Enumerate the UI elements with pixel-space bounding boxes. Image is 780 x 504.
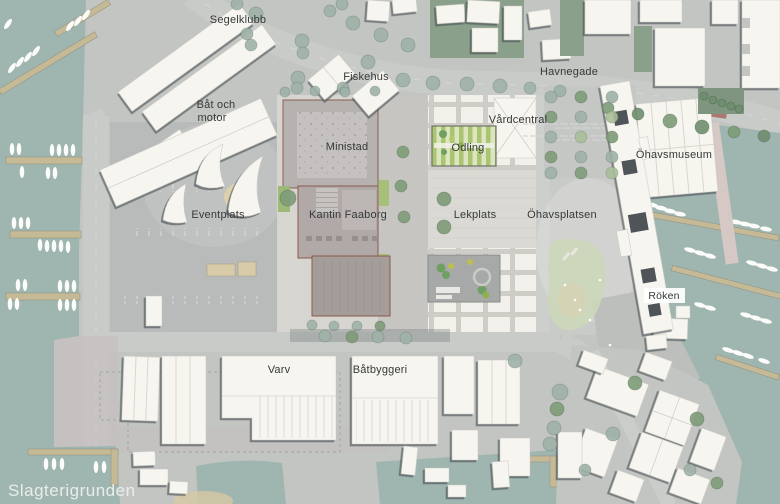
label-odling: Odling	[452, 142, 485, 154]
label-segelklubb: Segelklubb	[210, 14, 266, 26]
label-ohavsplatsen: Öhavsplatsen	[527, 209, 597, 221]
courtyard-playground	[428, 255, 500, 302]
label-ohavsmuseum: Öhavsmuseum	[636, 149, 712, 161]
label-ministad: Ministad	[326, 141, 369, 153]
site-plan-svg: Segelklubb Fiskehus Havnegade Båt och mo…	[0, 0, 780, 504]
label-eventplats: Eventplats	[191, 209, 245, 221]
label-bat-och-motor-2: motor	[197, 112, 226, 124]
label-varv: Varv	[268, 364, 291, 376]
label-bat-och-motor-1: Båt och	[197, 99, 236, 111]
label-vardcentral: Vårdcentral	[489, 114, 547, 126]
label-slagterigrunden: Slagterigrunden	[8, 481, 136, 500]
label-batbyggeri: Båtbyggeri	[353, 364, 408, 376]
site-plan-map: Segelklubb Fiskehus Havnegade Båt och mo…	[0, 0, 780, 504]
label-lekplats: Lekplats	[454, 209, 497, 221]
label-kantin-faaborg: Kantin Faaborg	[309, 209, 387, 221]
label-roken: Röken	[648, 290, 679, 302]
label-havnegade: Havnegade	[540, 66, 598, 78]
kantin-faaborg-building	[298, 186, 390, 316]
label-fiskehus: Fiskehus	[343, 71, 389, 83]
